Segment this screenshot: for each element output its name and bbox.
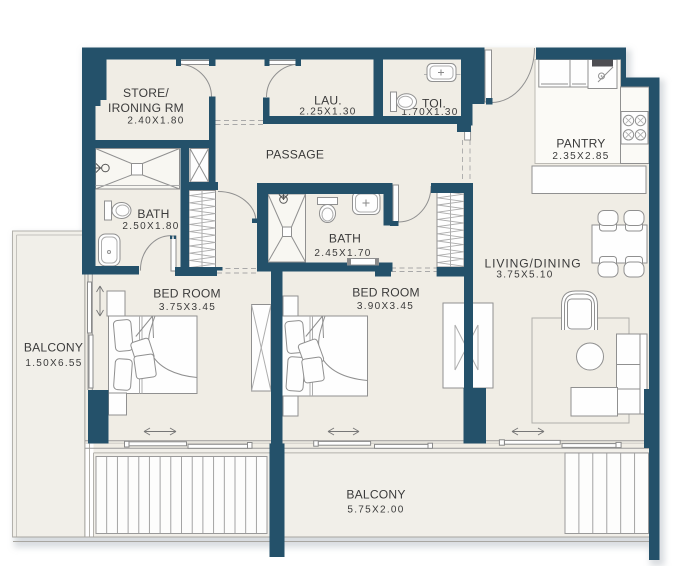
svg-text:IRONING RM: IRONING RM bbox=[108, 101, 184, 115]
svg-text:BALCONY: BALCONY bbox=[346, 488, 405, 502]
svg-text:5.75X2.00: 5.75X2.00 bbox=[347, 505, 404, 516]
svg-text:2.35X2.85: 2.35X2.85 bbox=[552, 151, 609, 162]
svg-text:STORE/: STORE/ bbox=[123, 86, 169, 100]
svg-text:2.25X1.30: 2.25X1.30 bbox=[299, 107, 356, 118]
svg-text:PANTRY: PANTRY bbox=[556, 137, 605, 151]
svg-text:2.50X1.80: 2.50X1.80 bbox=[122, 221, 179, 232]
svg-text:3.75X5.10: 3.75X5.10 bbox=[496, 270, 553, 281]
svg-text:2.45X1.70: 2.45X1.70 bbox=[314, 248, 371, 259]
svg-text:1.50X6.55: 1.50X6.55 bbox=[25, 358, 82, 369]
svg-text:3.90X3.45: 3.90X3.45 bbox=[357, 301, 414, 312]
svg-text:LAU.: LAU. bbox=[314, 94, 342, 108]
svg-text:2.40X1.80: 2.40X1.80 bbox=[127, 116, 184, 127]
svg-text:PASSAGE: PASSAGE bbox=[266, 148, 324, 162]
svg-text:BED ROOM: BED ROOM bbox=[153, 287, 220, 301]
svg-text:BATH: BATH bbox=[329, 232, 361, 246]
svg-text:BALCONY: BALCONY bbox=[24, 341, 83, 355]
svg-text:BATH: BATH bbox=[137, 207, 169, 221]
svg-text:3.75X3.45: 3.75X3.45 bbox=[159, 302, 216, 313]
svg-text:BED ROOM: BED ROOM bbox=[352, 286, 419, 300]
svg-text:LIVING/DINING: LIVING/DINING bbox=[484, 257, 581, 271]
